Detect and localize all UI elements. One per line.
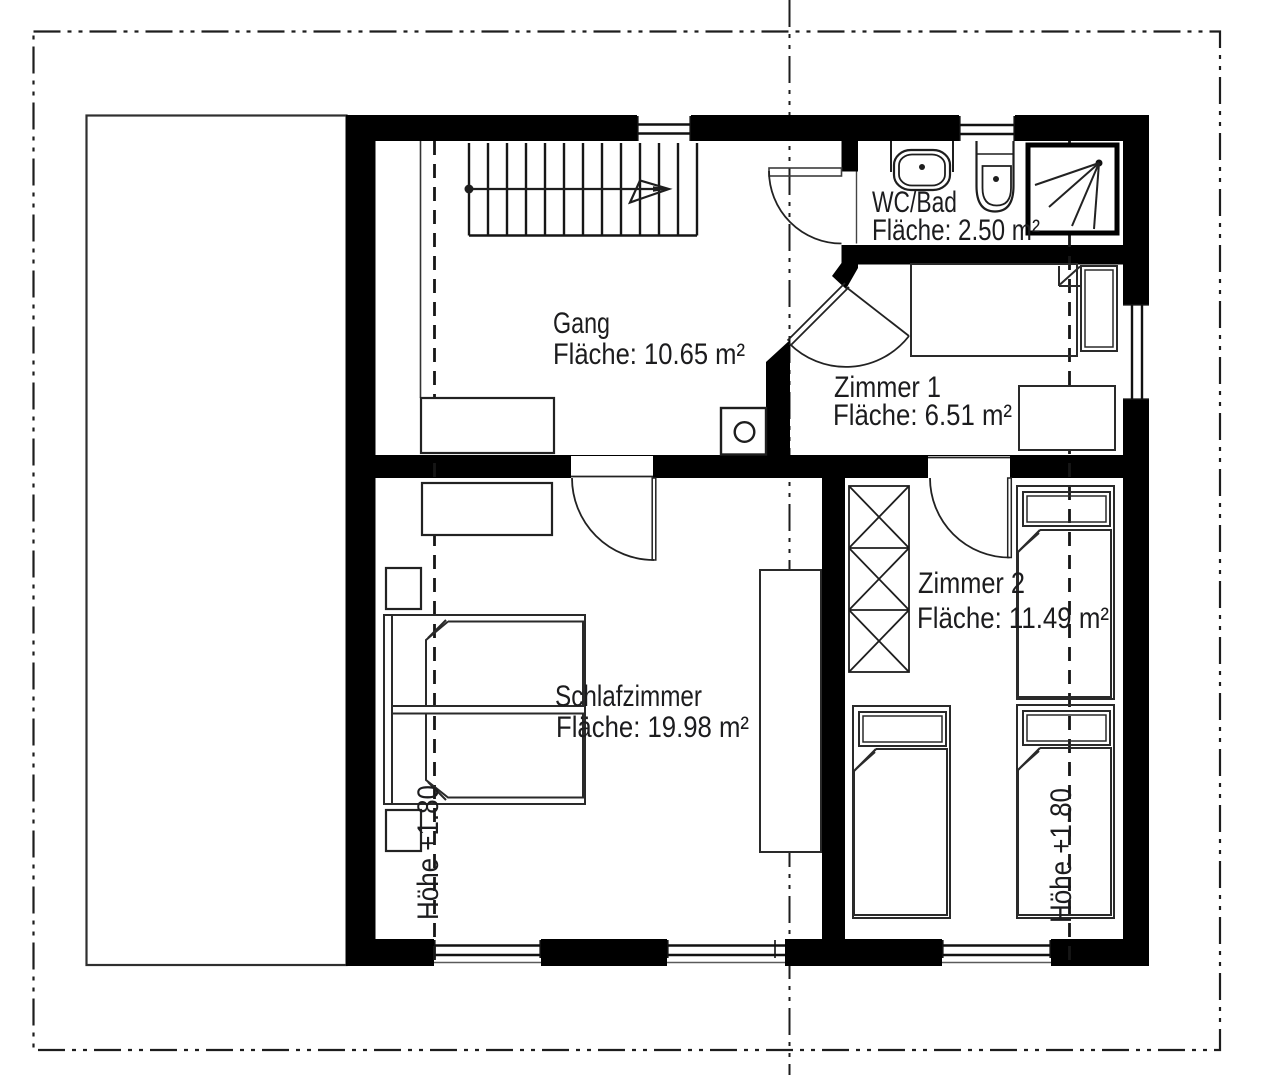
svg-text:Fläche: 11.49 m²: Fläche: 11.49 m² [917, 602, 1109, 635]
svg-text:Fläche: 6.51 m²: Fläche: 6.51 m² [833, 399, 1012, 432]
svg-text:Schlafzimmer: Schlafzimmer [555, 680, 702, 713]
svg-text:Höhe +1.80: Höhe +1.80 [1045, 788, 1078, 923]
svg-text:Gang: Gang [553, 307, 610, 340]
svg-text:Höhe +1.80: Höhe +1.80 [412, 785, 445, 920]
svg-text:Zimmer 2: Zimmer 2 [918, 567, 1025, 600]
svg-text:Fläche: 19.98 m²: Fläche: 19.98 m² [556, 711, 749, 744]
svg-text:Fläche: 2.50 m²: Fläche: 2.50 m² [872, 214, 1040, 247]
svg-text:Fläche: 10.65 m²: Fläche: 10.65 m² [553, 338, 745, 371]
